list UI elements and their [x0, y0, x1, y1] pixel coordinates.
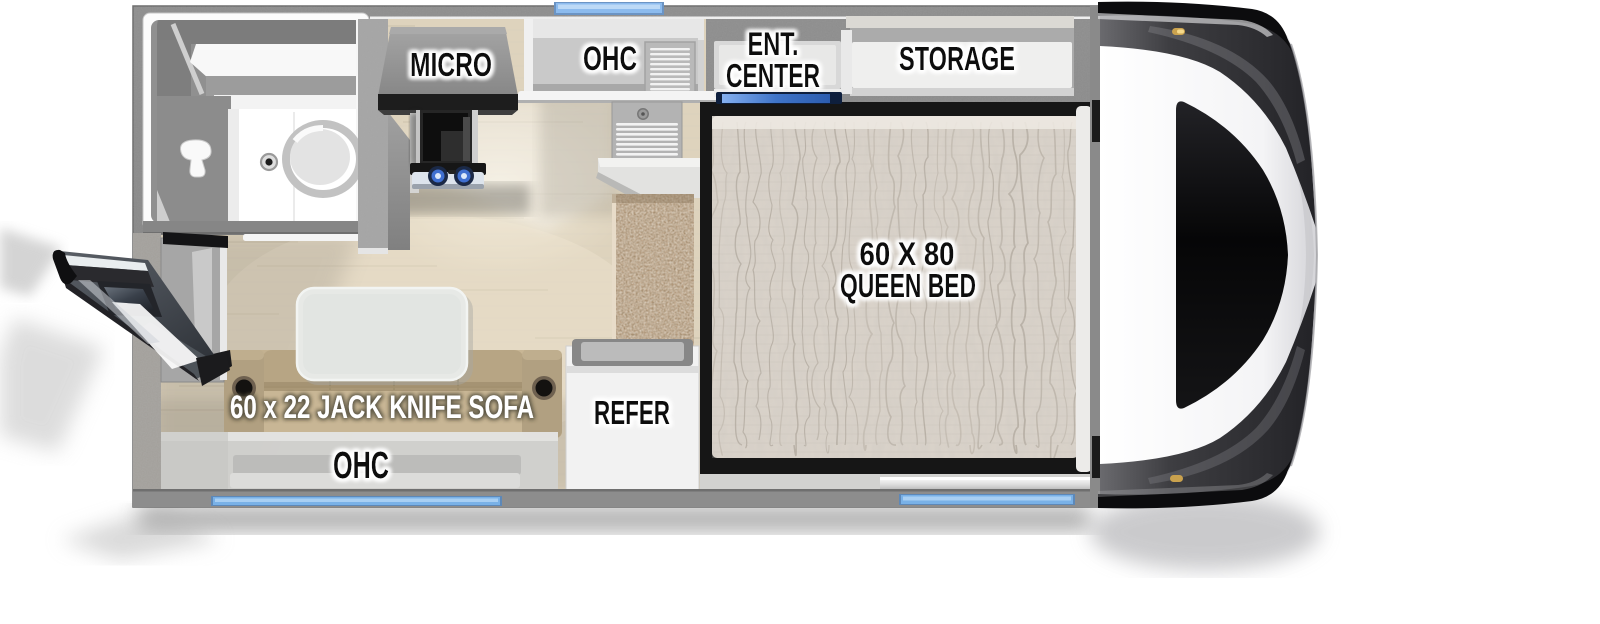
svg-text:CENTER: CENTER	[726, 57, 820, 94]
svg-text:OHC: OHC	[583, 40, 637, 78]
svg-text:60 x 22 JACK KNIFE SOFA: 60 x 22 JACK KNIFE SOFA	[230, 389, 534, 425]
svg-text:OHC: OHC	[333, 445, 389, 487]
svg-text:QUEEN BED: QUEEN BED	[840, 267, 976, 304]
svg-text:STORAGE: STORAGE	[899, 40, 1015, 77]
svg-text:REFER: REFER	[594, 394, 670, 431]
svg-text:MICRO: MICRO	[410, 46, 492, 83]
